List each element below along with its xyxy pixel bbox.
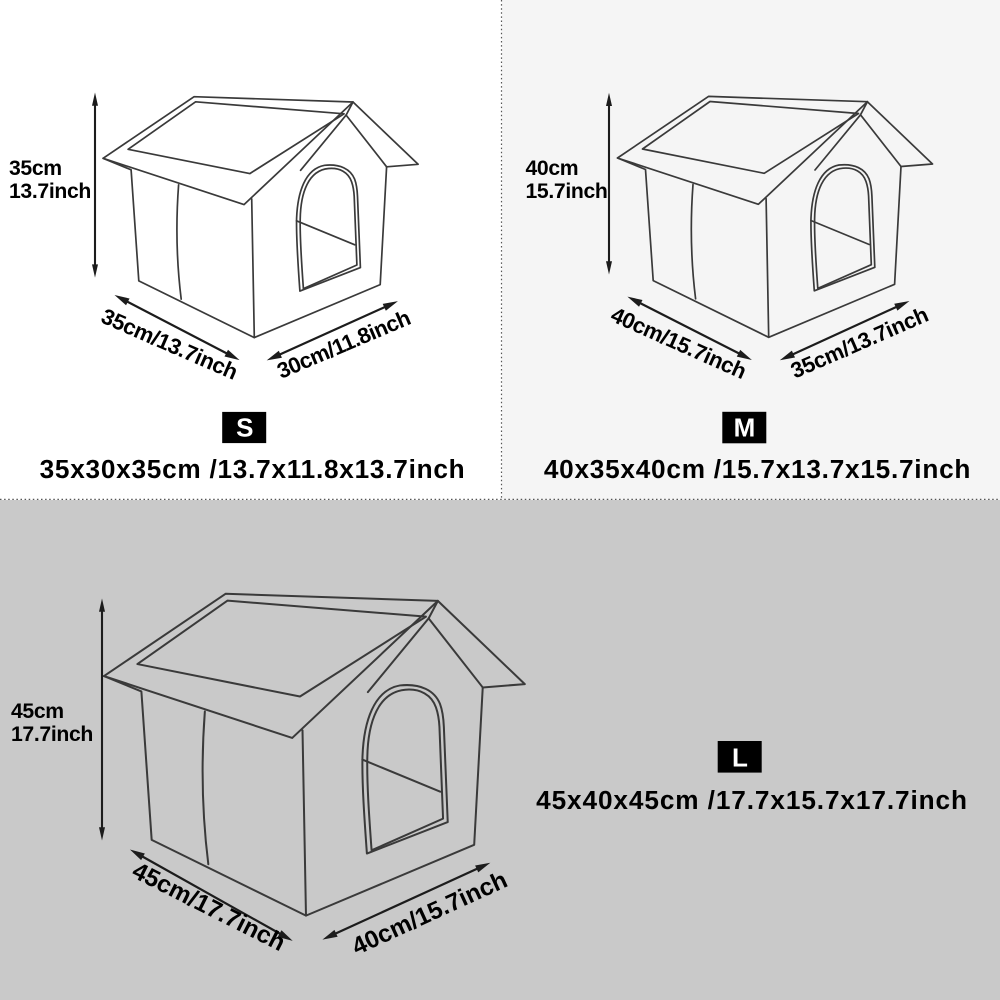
svg-text:35cm: 35cm	[9, 157, 62, 180]
svg-text:45x40x45cm /17.7x15.7x17.7inch: 45x40x45cm /17.7x15.7x17.7inch	[536, 785, 968, 815]
svg-text:35x30x35cm /13.7x11.8x13.7inch: 35x30x35cm /13.7x11.8x13.7inch	[40, 454, 466, 484]
svg-text:35cm/13.7inch: 35cm/13.7inch	[98, 303, 242, 384]
svg-text:45cm/17.7inch: 45cm/17.7inch	[128, 857, 290, 957]
svg-text:17.7inch: 17.7inch	[11, 723, 93, 746]
svg-text:45cm: 45cm	[11, 700, 64, 723]
svg-text:40x35x40cm /15.7x13.7x15.7inch: 40x35x40cm /15.7x13.7x15.7inch	[544, 454, 971, 484]
svg-text:40cm: 40cm	[526, 157, 579, 180]
svg-text:40cm/15.7inch: 40cm/15.7inch	[607, 302, 750, 384]
svg-text:M: M	[734, 413, 756, 443]
svg-text:35cm/13.7inch: 35cm/13.7inch	[787, 302, 932, 384]
svg-text:40cm/15.7inch: 40cm/15.7inch	[348, 866, 512, 960]
svg-text:15.7inch: 15.7inch	[526, 180, 608, 203]
svg-text:30cm/11.8inch: 30cm/11.8inch	[273, 305, 414, 384]
svg-text:13.7inch: 13.7inch	[9, 180, 91, 203]
svg-text:L: L	[732, 743, 748, 773]
svg-text:S: S	[236, 412, 253, 442]
